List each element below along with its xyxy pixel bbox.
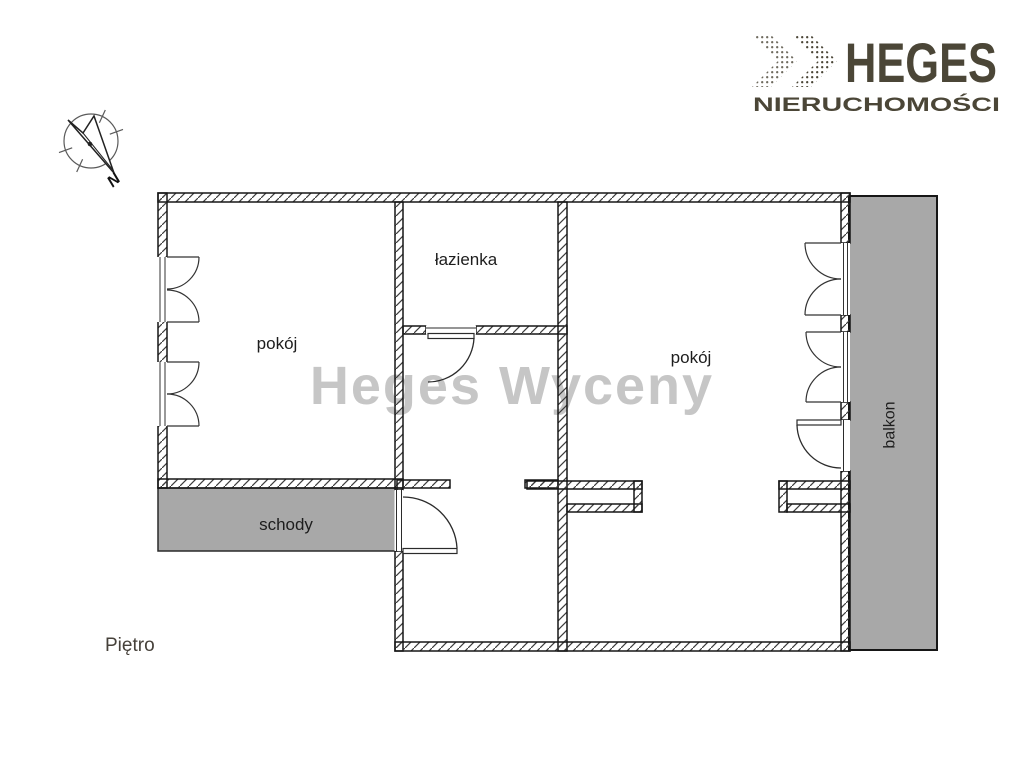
- logo: HEGES NIERUCHOMOŚCI: [752, 31, 1000, 116]
- floor-label: Piętro: [105, 635, 155, 656]
- stairs-door: [395, 490, 458, 554]
- bathroom-label: łazienka: [435, 250, 498, 269]
- compass-north-label: N: [104, 170, 124, 191]
- north-arrow-icon: N: [59, 110, 124, 191]
- window-left-2: [157, 362, 200, 426]
- window-left-1: [157, 257, 200, 322]
- window-right-2: [806, 332, 850, 402]
- walls: [158, 193, 850, 651]
- watermark-text: Heges Wyceny: [310, 356, 714, 416]
- room-left-label: pokój: [257, 334, 298, 353]
- balcony-door: [797, 420, 850, 471]
- window-right-1: [805, 243, 850, 315]
- watermark: Heges Wyceny Heges Wyceny: [307, 353, 714, 416]
- logo-brand: HEGES: [845, 31, 997, 94]
- logo-tagline: NIERUCHOMOŚCI: [753, 94, 1000, 116]
- room-right-label: pokój: [671, 348, 712, 367]
- logo-chevrons-icon: [752, 35, 837, 87]
- stairs-label: schody: [259, 515, 313, 534]
- balcony-label: balkon: [882, 401, 899, 448]
- floor-plan-canvas: Heges Wyceny Heges Wyceny: [0, 0, 1024, 768]
